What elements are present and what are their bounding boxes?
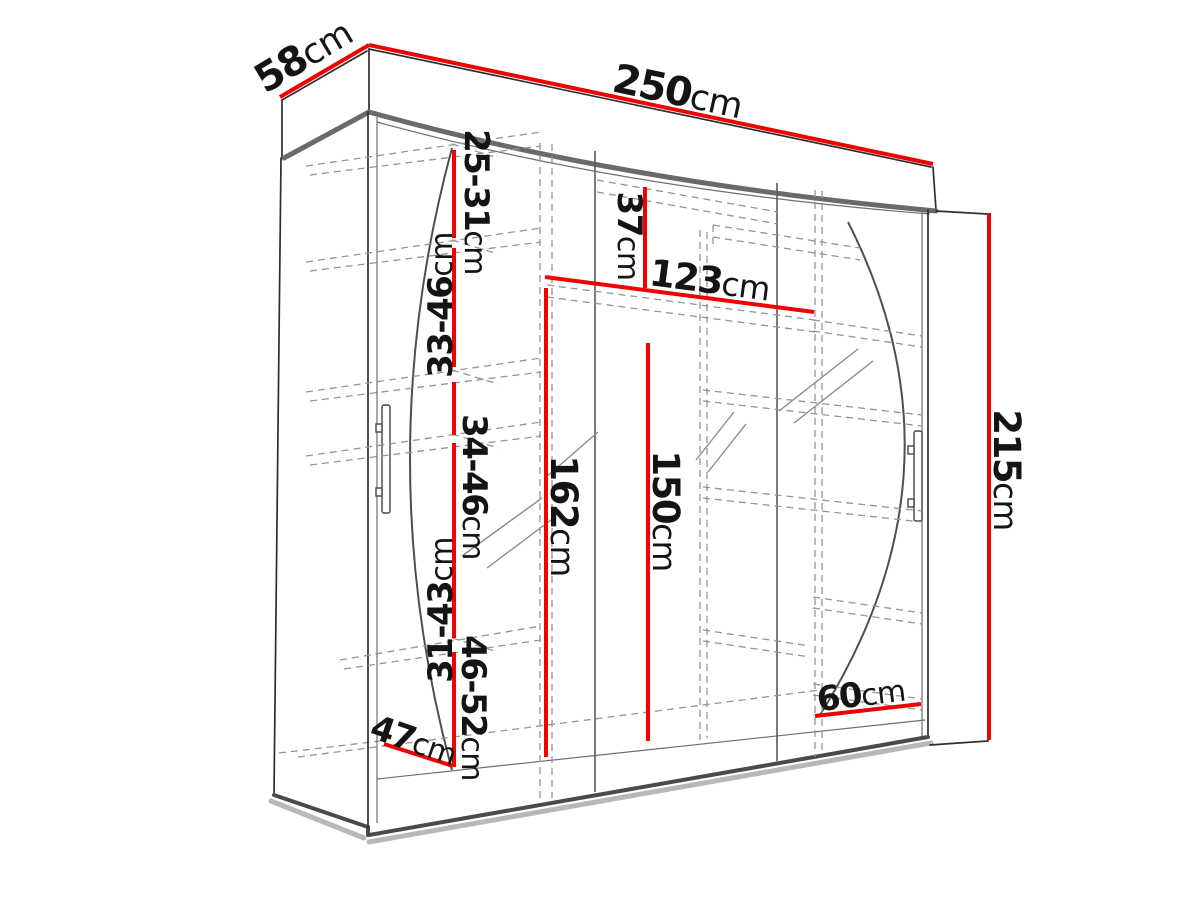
dim-label-123cm: 123cm: [647, 251, 773, 309]
right-side-panel: [930, 211, 988, 745]
diagram-canvas: 58cm 250cm 215cm 25-31cm 33-46cm 34-46cm…: [0, 0, 1200, 900]
dim-label-34-46cm: 34-46cm: [454, 414, 494, 560]
left-side-edge: [274, 158, 281, 794]
right-shelf-cluster: [703, 320, 922, 710]
dim-label-25-31cm: 25-31cm: [456, 129, 496, 275]
dimension-labels: 58cm 250cm 215cm 25-31cm 33-46cm 34-46cm…: [247, 9, 1029, 781]
dim-label-58cm: 58cm: [247, 9, 361, 103]
wardrobe-dimension-diagram: 58cm 250cm 215cm 25-31cm 33-46cm 34-46cm…: [0, 0, 1200, 900]
dim-label-37cm: 37cm: [609, 192, 649, 281]
dim-label-47cm: 47cm: [365, 707, 462, 774]
dim-label-150cm: 150cm: [644, 450, 687, 571]
right-door-arc: [820, 222, 905, 715]
dim-label-215cm: 215cm: [985, 409, 1028, 530]
right-door-handle: [908, 431, 922, 521]
dim-label-162cm: 162cm: [542, 455, 585, 576]
left-door-handle: [376, 405, 390, 513]
dim-label-60cm: 60cm: [815, 670, 908, 721]
dim-label-33-46cm: 33-46cm: [421, 232, 461, 378]
dim-label-250cm: 250cm: [609, 56, 747, 128]
dim-label-46-52cm: 46-52cm: [453, 635, 493, 781]
